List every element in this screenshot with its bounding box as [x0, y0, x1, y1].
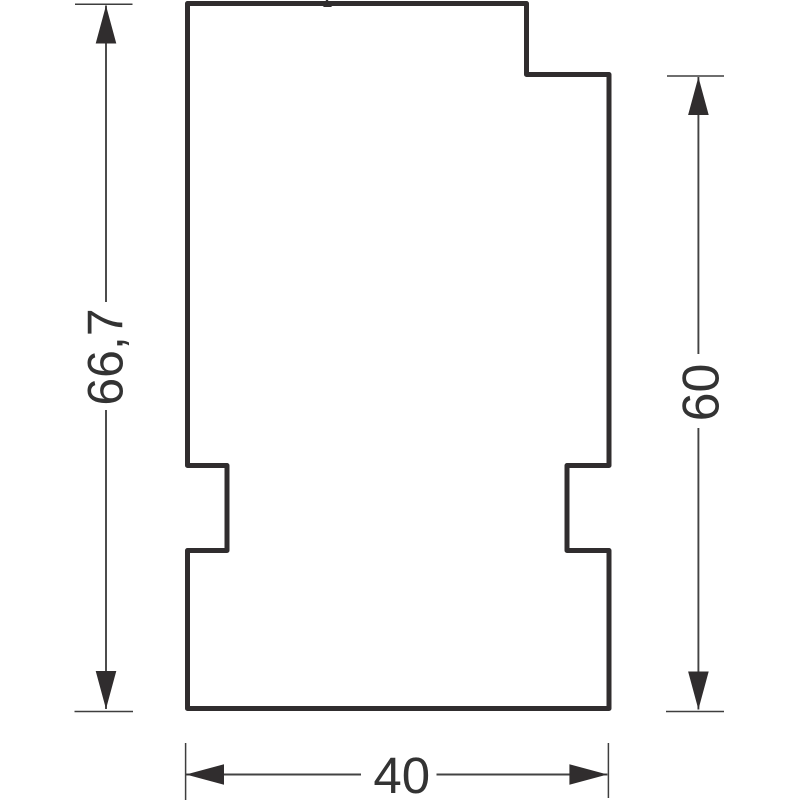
svg-text:66,7: 66,7 — [78, 308, 134, 405]
svg-text:60: 60 — [673, 364, 731, 422]
svg-text:40: 40 — [373, 747, 430, 800]
